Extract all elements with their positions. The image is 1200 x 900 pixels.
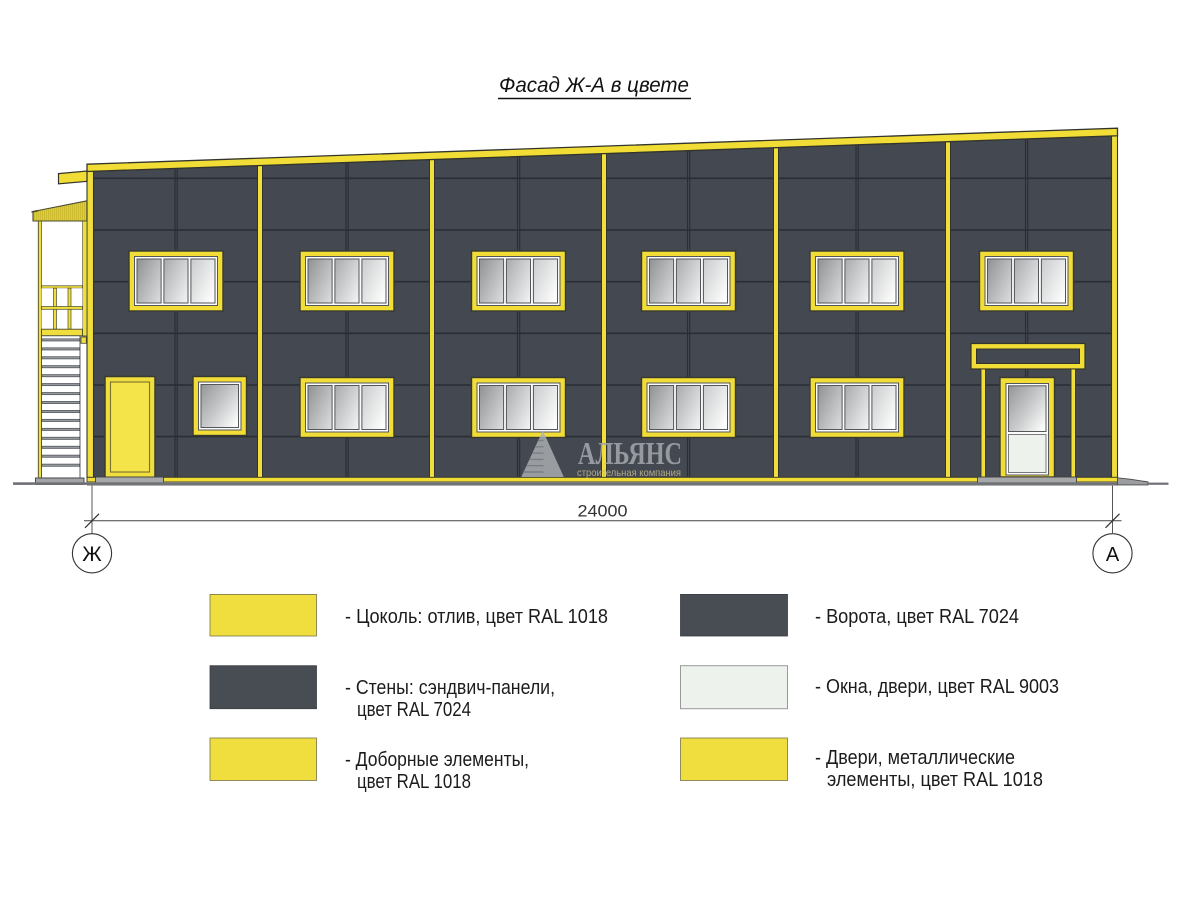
svg-text:- Доборные элементы,: - Доборные элементы, [345, 749, 529, 771]
svg-text:АЛЬЯНС: АЛЬЯНС [578, 435, 682, 471]
svg-text:цвет RAL 1018: цвет RAL 1018 [357, 771, 471, 793]
svg-text:А: А [1106, 544, 1120, 566]
svg-text:- Ворота, цвет RAL 7024: - Ворота, цвет RAL 7024 [815, 606, 1019, 628]
svg-text:Ж: Ж [82, 543, 102, 566]
svg-text:Фасад Ж-А в цвете: Фасад Ж-А в цвете [499, 73, 689, 97]
svg-text:строительная компания: строительная компания [577, 467, 681, 479]
svg-text:элементы, цвет RAL 1018: элементы, цвет RAL 1018 [827, 769, 1043, 791]
svg-text:- Цоколь: отлив, цвет RAL 1018: - Цоколь: отлив, цвет RAL 1018 [345, 606, 608, 628]
svg-text:- Двери, металлические: - Двери, металлические [815, 747, 1015, 769]
svg-text:- Стены: сэндвич-панели,: - Стены: сэндвич-панели, [345, 677, 555, 699]
svg-text:- Окна, двери, цвет RAL 9003: - Окна, двери, цвет RAL 9003 [815, 676, 1059, 698]
svg-text:цвет RAL 7024: цвет RAL 7024 [357, 699, 471, 721]
svg-text:24000: 24000 [578, 502, 628, 521]
